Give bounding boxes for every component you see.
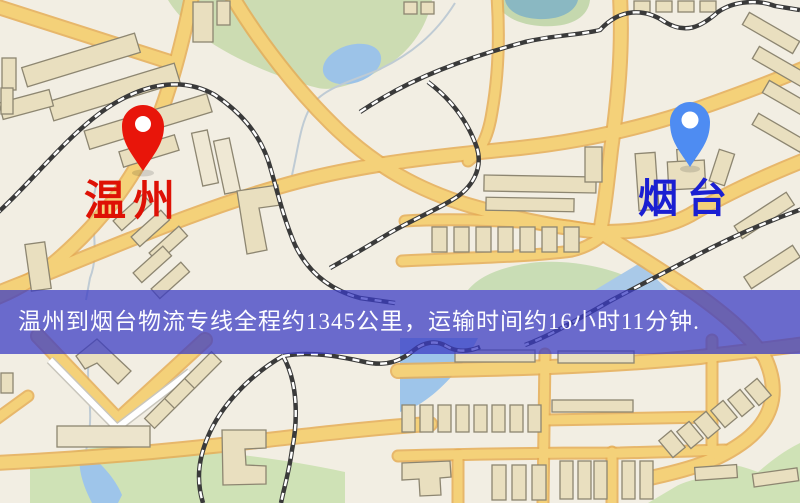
origin-label: 温州 <box>84 181 182 223</box>
route-info-text: 温州到烟台物流专线全程约1345公里，运输时间约16小时11分钟. <box>0 290 800 354</box>
destination-label: 烟台 <box>638 179 736 219</box>
route-info-banner: 温州到烟台物流专线全程约1345公里，运输时间约16小时11分钟. <box>0 290 800 354</box>
map-canvas[interactable]: 温州 烟台 温州到烟台物流专线全程约1345公里，运输时间约16小时11分钟. <box>0 0 800 503</box>
map-background <box>0 0 800 503</box>
